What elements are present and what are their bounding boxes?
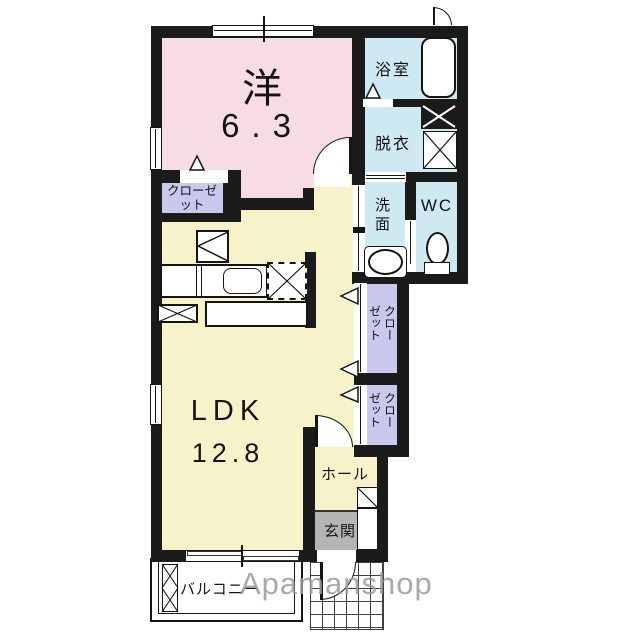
washing-machine-pan: [423, 131, 457, 169]
door-leaf-neighbor: [433, 7, 435, 25]
shoe-cabinet-top: [357, 487, 378, 508]
label-closet-lower: クローゼット: [367, 392, 397, 438]
door-wc: [406, 220, 416, 265]
door-closet-lower-line: [360, 386, 361, 444]
label-bath: 浴室: [363, 56, 423, 80]
window-left-upper-line: [155, 129, 156, 168]
kitchen-sink: [223, 268, 262, 294]
door-washroom-corridor-tick: [353, 227, 365, 233]
window-left-lower-line: [155, 386, 156, 423]
stove-space-dashed: [267, 262, 307, 300]
bathtub: [421, 37, 456, 98]
label-closet-west: クローゼット: [161, 184, 223, 212]
opening-bath-door: [363, 99, 393, 107]
watermark: Apamanshop: [240, 566, 433, 602]
door-leaf-hall: [315, 415, 318, 447]
door-arc-neighbor: [433, 7, 452, 25]
storage-x-box: [421, 104, 457, 129]
washbasin-bowl: [368, 249, 403, 275]
wall-step-2: [303, 188, 314, 210]
door-wc-line: [410, 221, 411, 264]
label-hall: ホール: [313, 463, 377, 484]
window-left-lower: [150, 384, 162, 425]
wall-washroom-wc: [405, 182, 416, 220]
balcony-hatch-box: [162, 564, 178, 612]
refrigerator-space: [196, 230, 229, 263]
label-closet-upper: クローゼット: [367, 305, 397, 351]
opening-entrance-door: [317, 550, 356, 562]
kitchen-x-box: [157, 304, 198, 323]
kitchen-counter-divider1: [196, 266, 197, 296]
toilet-base: [424, 262, 450, 275]
window-left-upper: [150, 127, 162, 170]
wall-closet-west-bottom: [151, 213, 241, 222]
door-closet-upper-line: [360, 284, 361, 372]
label-ldk-area: 12.8: [168, 438, 288, 469]
opening-western-door: [314, 172, 350, 187]
label-closet-upper-wrap: クローゼット: [366, 283, 397, 373]
door-leaf-western: [349, 137, 352, 174]
wall-bath-right: [457, 26, 468, 284]
window-balcony-panel-left: [187, 551, 243, 556]
kitchen-counter-lower: [205, 301, 308, 327]
label-closet-lower-wrap: クローゼット: [366, 385, 397, 445]
label-entrance: 玄関: [312, 520, 368, 541]
wall-closets-mid: [354, 373, 409, 385]
kitchen-counter-divider2: [201, 266, 202, 296]
wall-closet-col-right: [397, 272, 409, 457]
label-ldk: LDK: [168, 395, 288, 428]
opening-closet-west: [180, 170, 228, 183]
label-washroom: 洗面: [371, 189, 392, 243]
label-western: 洋: [212, 56, 312, 114]
toilet-bowl: [426, 232, 449, 265]
label-wc: WC: [416, 196, 458, 216]
window-balcony-panel-right: [243, 556, 299, 561]
door-dressing-washroom-line2: [366, 178, 405, 179]
window-top-tick: [263, 16, 265, 42]
wall-hall-right: [377, 445, 388, 562]
door-dressing-washroom-line1: [366, 175, 405, 176]
label-western-area: 6.3: [206, 107, 318, 145]
label-dressing: 脱衣: [363, 130, 423, 154]
window-balcony-tick: [241, 545, 243, 567]
floor-plan: 洋 6.3 LDK 12.8 浴室 脱衣 洗面 WC クローゼット クローゼット…: [0, 0, 640, 640]
door-dressing-washroom: [365, 172, 406, 182]
